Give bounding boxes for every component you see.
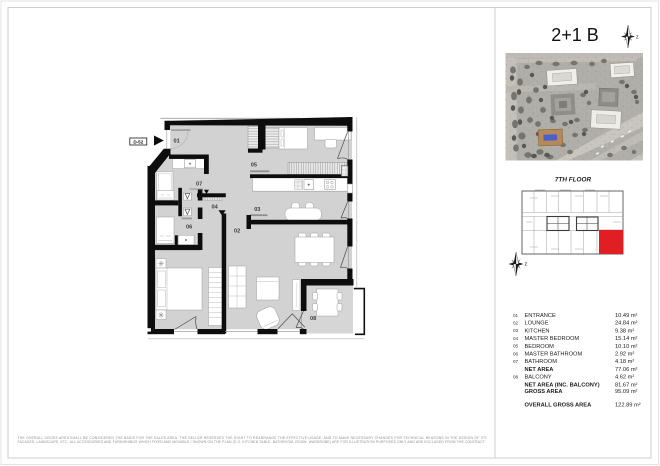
svg-text:BALCONY: BALCONY bbox=[525, 375, 552, 381]
svg-text:01: 01 bbox=[174, 139, 180, 145]
svg-text:ENTRANCE: ENTRANCE bbox=[525, 313, 556, 319]
svg-text:NET AREA: NET AREA bbox=[525, 367, 554, 373]
svg-text:4.18 m²: 4.18 m² bbox=[615, 359, 634, 365]
svg-text:95.09 m²: 95.09 m² bbox=[615, 389, 638, 395]
svg-text:z: z bbox=[525, 262, 528, 268]
svg-text:BATHROOM: BATHROOM bbox=[525, 359, 558, 365]
svg-text:NET AREA (INC. BALCONY): NET AREA (INC. BALCONY) bbox=[525, 382, 600, 388]
svg-text:02: 02 bbox=[234, 229, 240, 235]
svg-text:04: 04 bbox=[212, 205, 219, 211]
svg-text:06: 06 bbox=[186, 225, 192, 231]
svg-text:24.84 m²: 24.84 m² bbox=[615, 321, 638, 327]
svg-text:4.62 m²: 4.62 m² bbox=[615, 375, 634, 381]
svg-text:07: 07 bbox=[513, 359, 519, 364]
svg-text:81.67 m²: 81.67 m² bbox=[615, 382, 638, 388]
svg-text:7TH FLOOR: 7TH FLOOR bbox=[555, 177, 592, 184]
svg-text:08: 08 bbox=[310, 316, 316, 322]
svg-text:05: 05 bbox=[513, 344, 519, 349]
svg-text:9.38 m²: 9.38 m² bbox=[615, 328, 634, 334]
svg-text:LOUNGE: LOUNGE bbox=[525, 321, 549, 327]
svg-text:77.06 m²: 77.06 m² bbox=[615, 367, 638, 373]
svg-text:03: 03 bbox=[513, 328, 519, 333]
svg-text:2+1 B: 2+1 B bbox=[551, 25, 599, 45]
svg-text:KITCHEN: KITCHEN bbox=[525, 328, 550, 334]
svg-text:10.10 m²: 10.10 m² bbox=[615, 344, 638, 350]
svg-text:07: 07 bbox=[196, 182, 202, 188]
svg-text:05: 05 bbox=[251, 163, 257, 169]
svg-text:06: 06 bbox=[513, 351, 519, 356]
svg-text:D-52: D-52 bbox=[133, 139, 143, 144]
svg-text:15.14 m²: 15.14 m² bbox=[615, 336, 638, 342]
svg-text:2.92 m²: 2.92 m² bbox=[615, 352, 634, 358]
svg-text:MASTER BATHROOM: MASTER BATHROOM bbox=[525, 352, 583, 358]
svg-text:04: 04 bbox=[513, 336, 519, 341]
svg-text:GROSS AREA: GROSS AREA bbox=[525, 389, 563, 395]
svg-text:03: 03 bbox=[254, 207, 260, 213]
svg-text:02: 02 bbox=[513, 321, 519, 326]
svg-text:08: 08 bbox=[513, 374, 519, 379]
svg-text:FACADES, LANDSCAPE, ETC. ALL A: FACADES, LANDSCAPE, ETC. ALL ACCESSORIES… bbox=[18, 440, 486, 444]
svg-text:10.49 m²: 10.49 m² bbox=[615, 313, 638, 319]
svg-text:THE OVERALL GROSS AREA SHALL B: THE OVERALL GROSS AREA SHALL BE CONSIDER… bbox=[18, 436, 488, 440]
svg-text:OVERALL GROSS AREA: OVERALL GROSS AREA bbox=[525, 403, 592, 409]
svg-text:MASTER BEDROOM: MASTER BEDROOM bbox=[525, 336, 580, 342]
svg-text:01: 01 bbox=[513, 313, 519, 318]
svg-text:BEDROOM: BEDROOM bbox=[525, 344, 555, 350]
svg-text:122.89 m²: 122.89 m² bbox=[615, 403, 641, 409]
